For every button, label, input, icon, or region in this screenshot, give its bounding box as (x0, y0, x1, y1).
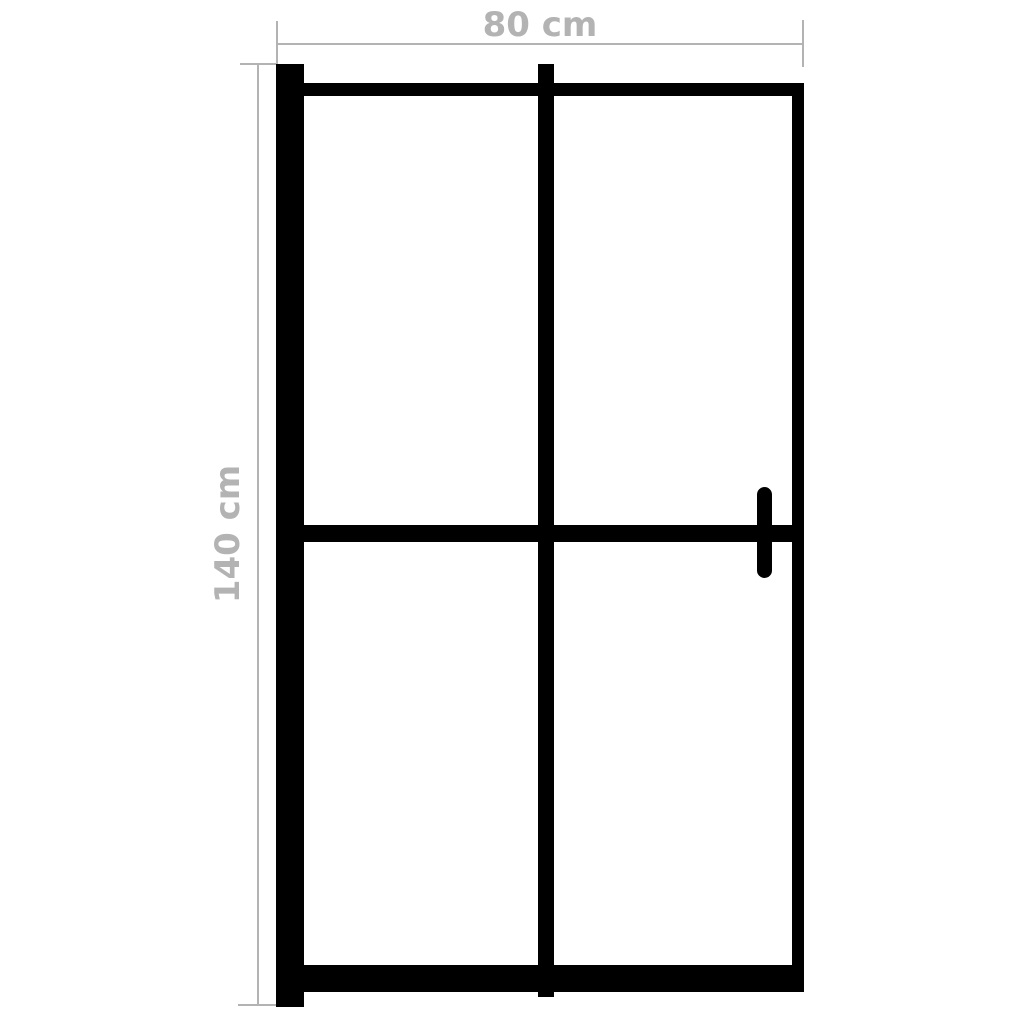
product-dimension-diagram: 80 cm 140 cm (0, 0, 1024, 1024)
width-dimension-tick-right (802, 20, 804, 67)
door-handle (757, 487, 772, 578)
right-stile (792, 83, 804, 992)
height-dimension-tick-bottom (238, 1004, 277, 1006)
middle-crossbar (290, 525, 792, 542)
height-dimension-label: 140 cm (211, 424, 251, 644)
width-dimension-label: 80 cm (400, 8, 680, 42)
height-dimension-line (257, 63, 259, 1006)
